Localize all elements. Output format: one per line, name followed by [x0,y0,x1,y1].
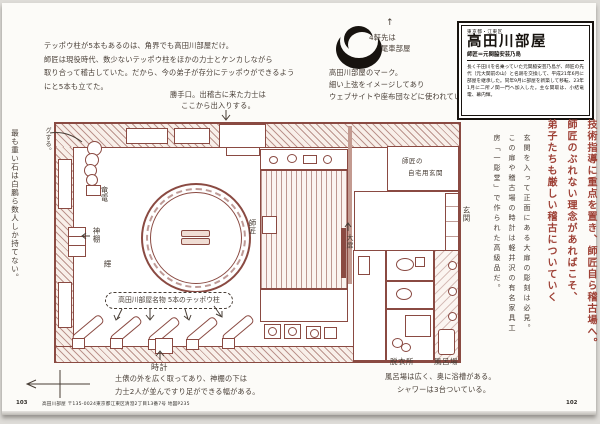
dressing-window [405,315,431,337]
katteguchi-door [219,124,266,148]
label-datsuijo: 脱衣所 [390,356,414,367]
shikiri-line [181,238,210,245]
washing-machine [306,326,321,339]
window [126,128,168,144]
intro-line: 取り合って稽古していた。だから、今の弟子が存分にテッポウができるよう [44,66,294,80]
intro-note: テッポウ柱が5本もあるのは、角界でも高田川部屋だけ。 師匠は現役時代、数少ないテ… [44,39,294,93]
inner-wall [348,126,352,284]
arrow-up-icon: ↑ [386,17,394,31]
clock-note-line1: 土俵の外を広く取ってあり、神棚の下は [115,373,260,386]
neighbor-line1: 4軒先は [369,32,411,43]
north-arrow-icon [27,370,90,398]
logo-caption-line: 高田川部屋のマーク。 [329,67,476,79]
teppo-base [72,338,85,349]
katteguchi-line2: ここから出入りする。 [170,100,266,111]
counter-item [303,155,317,164]
big-door-note: 玄関を入って正面にある大扉の彫刻は必見。この扉や稽古場の時計は軽井沢の有名家具工… [470,134,534,334]
counter-shelf [260,149,348,170]
dressing-room [386,309,434,361]
window [58,159,72,209]
bath-note-line1: 風呂場は広く、奥に浴槽がある。 [385,371,496,384]
toilet-stall [386,281,434,309]
toilet-icon [396,258,414,271]
master-seat [262,216,277,234]
intro-line: テッポウ柱が5本もあるのは、角界でも高田川部屋だけ。 [44,39,294,53]
right-page-number: 102 [566,400,577,406]
laundry-basket [324,327,337,339]
washing-machine [284,324,301,339]
label-obira: 大扉 [345,234,355,249]
lead-line: 技術指導に重点を置き、師匠自ら稽古場へ。 [580,119,600,359]
shikiri-line [181,230,210,237]
katteguchi-line1: 勝手口。出稽古に来た力士は [170,89,266,100]
lead-line: 弟子たちも厳しい稽古についていく [540,119,560,359]
katteguchi-step [226,147,260,156]
info-title: 高田川部屋 [467,35,584,50]
counter-item [287,154,297,163]
logo-caption-line: ウェブサイトや座布団などに使われている。 [329,91,476,103]
arrow-down-icon [222,110,230,120]
shower-head-icon [448,287,457,296]
left-page-number: 103 [16,400,27,406]
floor-plan: 師匠の 自宅用玄関 [54,122,461,363]
private-entrance-label: 師匠の [402,155,423,165]
page-edge-shadow [2,411,596,415]
washing-machine [264,324,281,339]
bath-room [434,250,459,361]
teppo-base [222,338,235,349]
wall-bottom [56,346,353,362]
bath-note: 風呂場は広く、奥に浴槽がある。 シャワーは3台ついている。 [385,371,496,396]
toilet-stall [386,250,434,281]
window [174,128,210,144]
heaviest-stone-note: 最も重い石は白鵬ら数人しか持てない。 [8,129,22,289]
info-subtitle: 師匠＝元関脇安芸乃島 [467,50,584,61]
counter-item [323,155,332,164]
bathtub [438,329,455,355]
lead-line: 師匠のぶれない理念があればこそ、 [560,119,580,359]
staircase [260,288,348,322]
info-body: 長く千田川を名乗っていた元関脇安芸乃島が、師匠の先代（元大関前の山）と名跡を交換… [467,64,584,99]
teppo-bubble: 高田川部屋名物 5本のテッポウ柱 [105,292,233,309]
toilet-tank [415,257,425,267]
label-furoba: 風呂場 [434,356,458,367]
neighbor-line2: 尾車部屋 [369,43,411,54]
private-entrance-room: 師匠の 自宅用玄関 [387,146,459,191]
clock-note: 土俵の外を広く取ってあり、神棚の下は 力士2人が並んですり足ができる幅がある。 [115,373,260,398]
window [58,282,72,328]
counter-item [269,156,278,164]
label-kamidana: 神棚 [91,227,102,243]
toilet-icon [396,288,412,300]
basket [401,343,411,352]
clock-box [155,338,173,354]
lead-vertical-text: 技術指導に重点を置き、師匠自ら稽古場へ。 師匠のぶれない理念があればこそ、 弟子… [536,119,600,359]
logo-caption: 高田川部屋のマーク。 細い上弦をイメージしてあり ウェブサイトや座布団などに使わ… [329,67,476,103]
label-tokei: 時計 [151,362,168,373]
teppo-base [110,338,123,349]
kamidana-altar [68,227,86,257]
private-entrance-label: 自宅用玄関 [408,167,443,177]
intro-line: 師匠は現役時代、数少ないテッポウ柱をほかの力士とケンカしながら [44,53,294,67]
logo-caption-line: 細い上弦をイメージしてあり [329,79,476,91]
label-kagayaki: 輝 [102,260,113,268]
teppo-base [186,339,199,350]
katteguchi-note: 勝手口。出稽古に来た力士は ここから出入りする。 [170,89,266,111]
entrance-tiles [354,191,459,251]
corridor [353,250,386,361]
stable-info-box: 東京都・江東区 高田川部屋 師匠＝元関脇安芸乃島 長く千田川を名乗っていた元関脇… [457,21,594,120]
book-spread-page: テッポウ柱が5本もあるのは、角界でも高田川部屋だけ。 師匠は現役時代、数少ないテ… [2,3,596,415]
shower-head-icon [448,261,457,270]
label-shisho: 師匠 [247,219,258,235]
corridor-door [358,256,370,275]
neighbor-note: 4軒先は 尾車部屋 [369,32,411,54]
shower-head-icon [448,312,457,321]
clock-note-line2: 力士2人が並んですり足ができる幅がある。 [115,386,260,399]
bath-note-line2: シャワーは3台ついている。 [385,384,496,397]
footer-address: 高田川部屋 〒135-0024東京都江東区清澄2丁目13番7号 地図P235 [42,401,190,407]
label-ryuden: 竜電 [99,186,110,202]
